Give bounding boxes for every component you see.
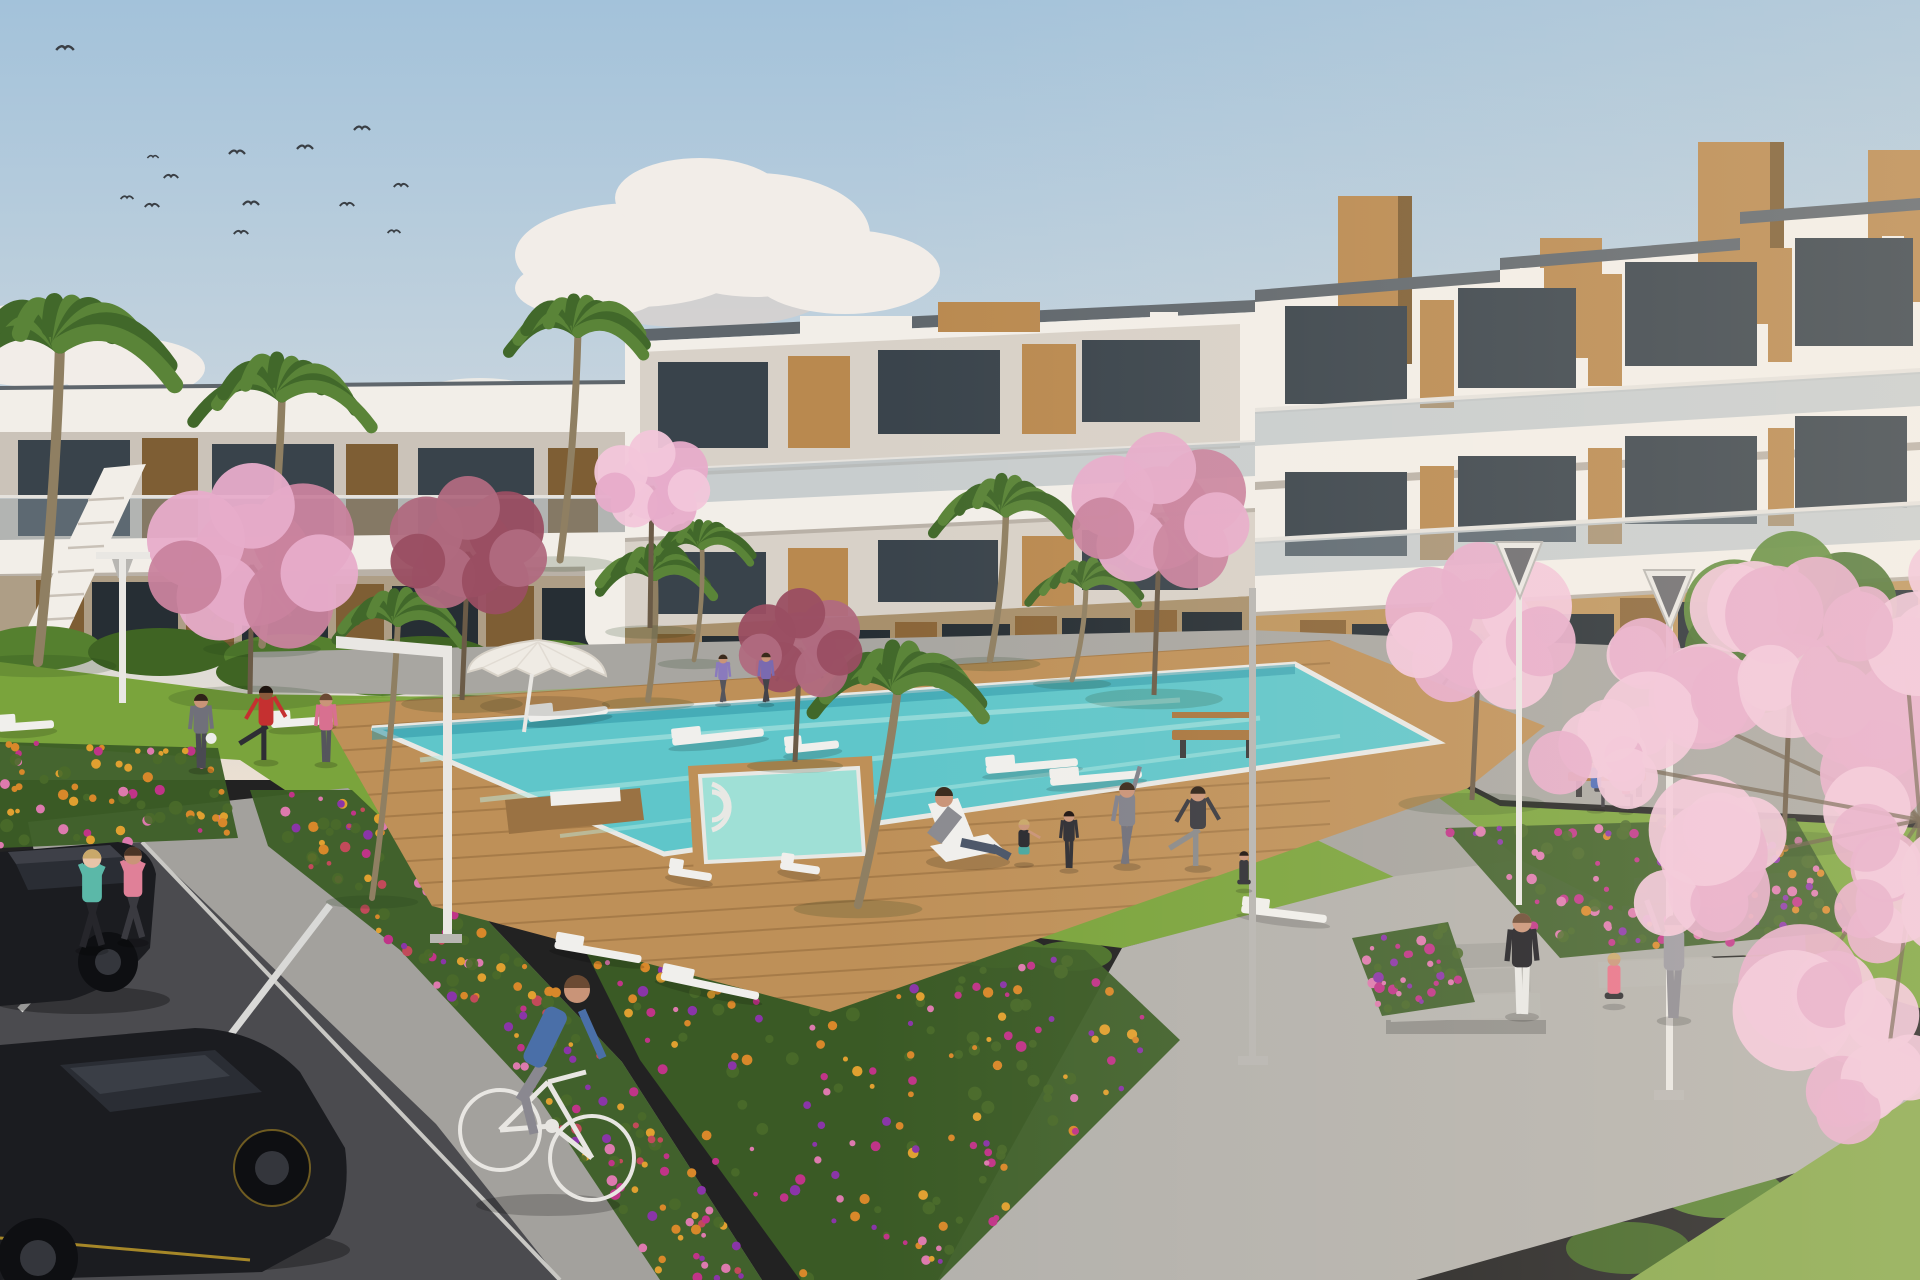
sunlight-tint xyxy=(0,0,1920,1280)
scene-canvas: Sunny 3D architectural rendering of a mo… xyxy=(0,0,1920,1280)
architectural-render: Sunny 3D architectural rendering of a mo… xyxy=(0,0,1920,1280)
